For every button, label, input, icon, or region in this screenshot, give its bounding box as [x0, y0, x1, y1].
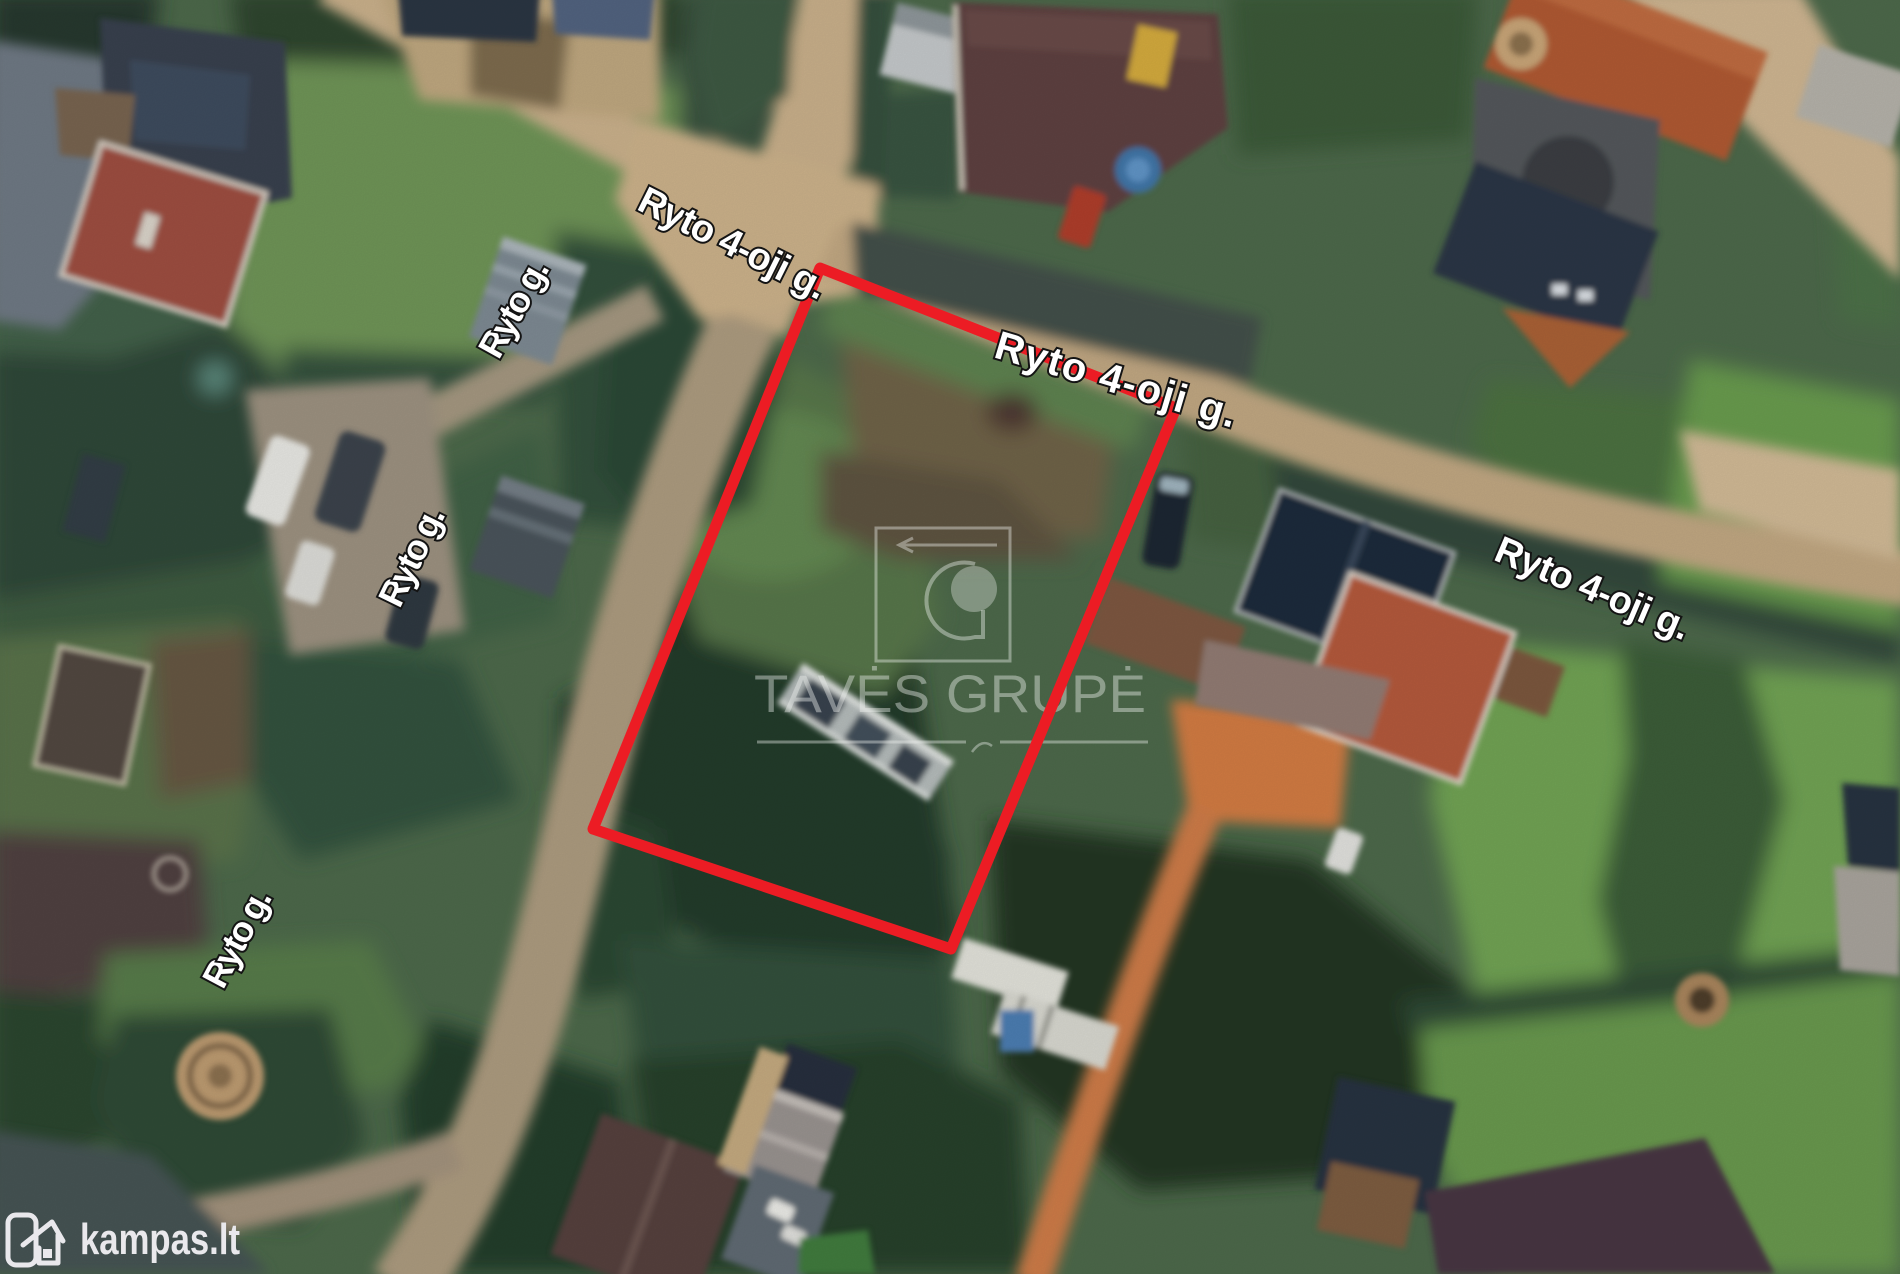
svg-text:kampas.lt: kampas.lt — [80, 1215, 240, 1264]
svg-text:TAVĖS GRUPĖ: TAVĖS GRUPĖ — [754, 665, 1146, 724]
